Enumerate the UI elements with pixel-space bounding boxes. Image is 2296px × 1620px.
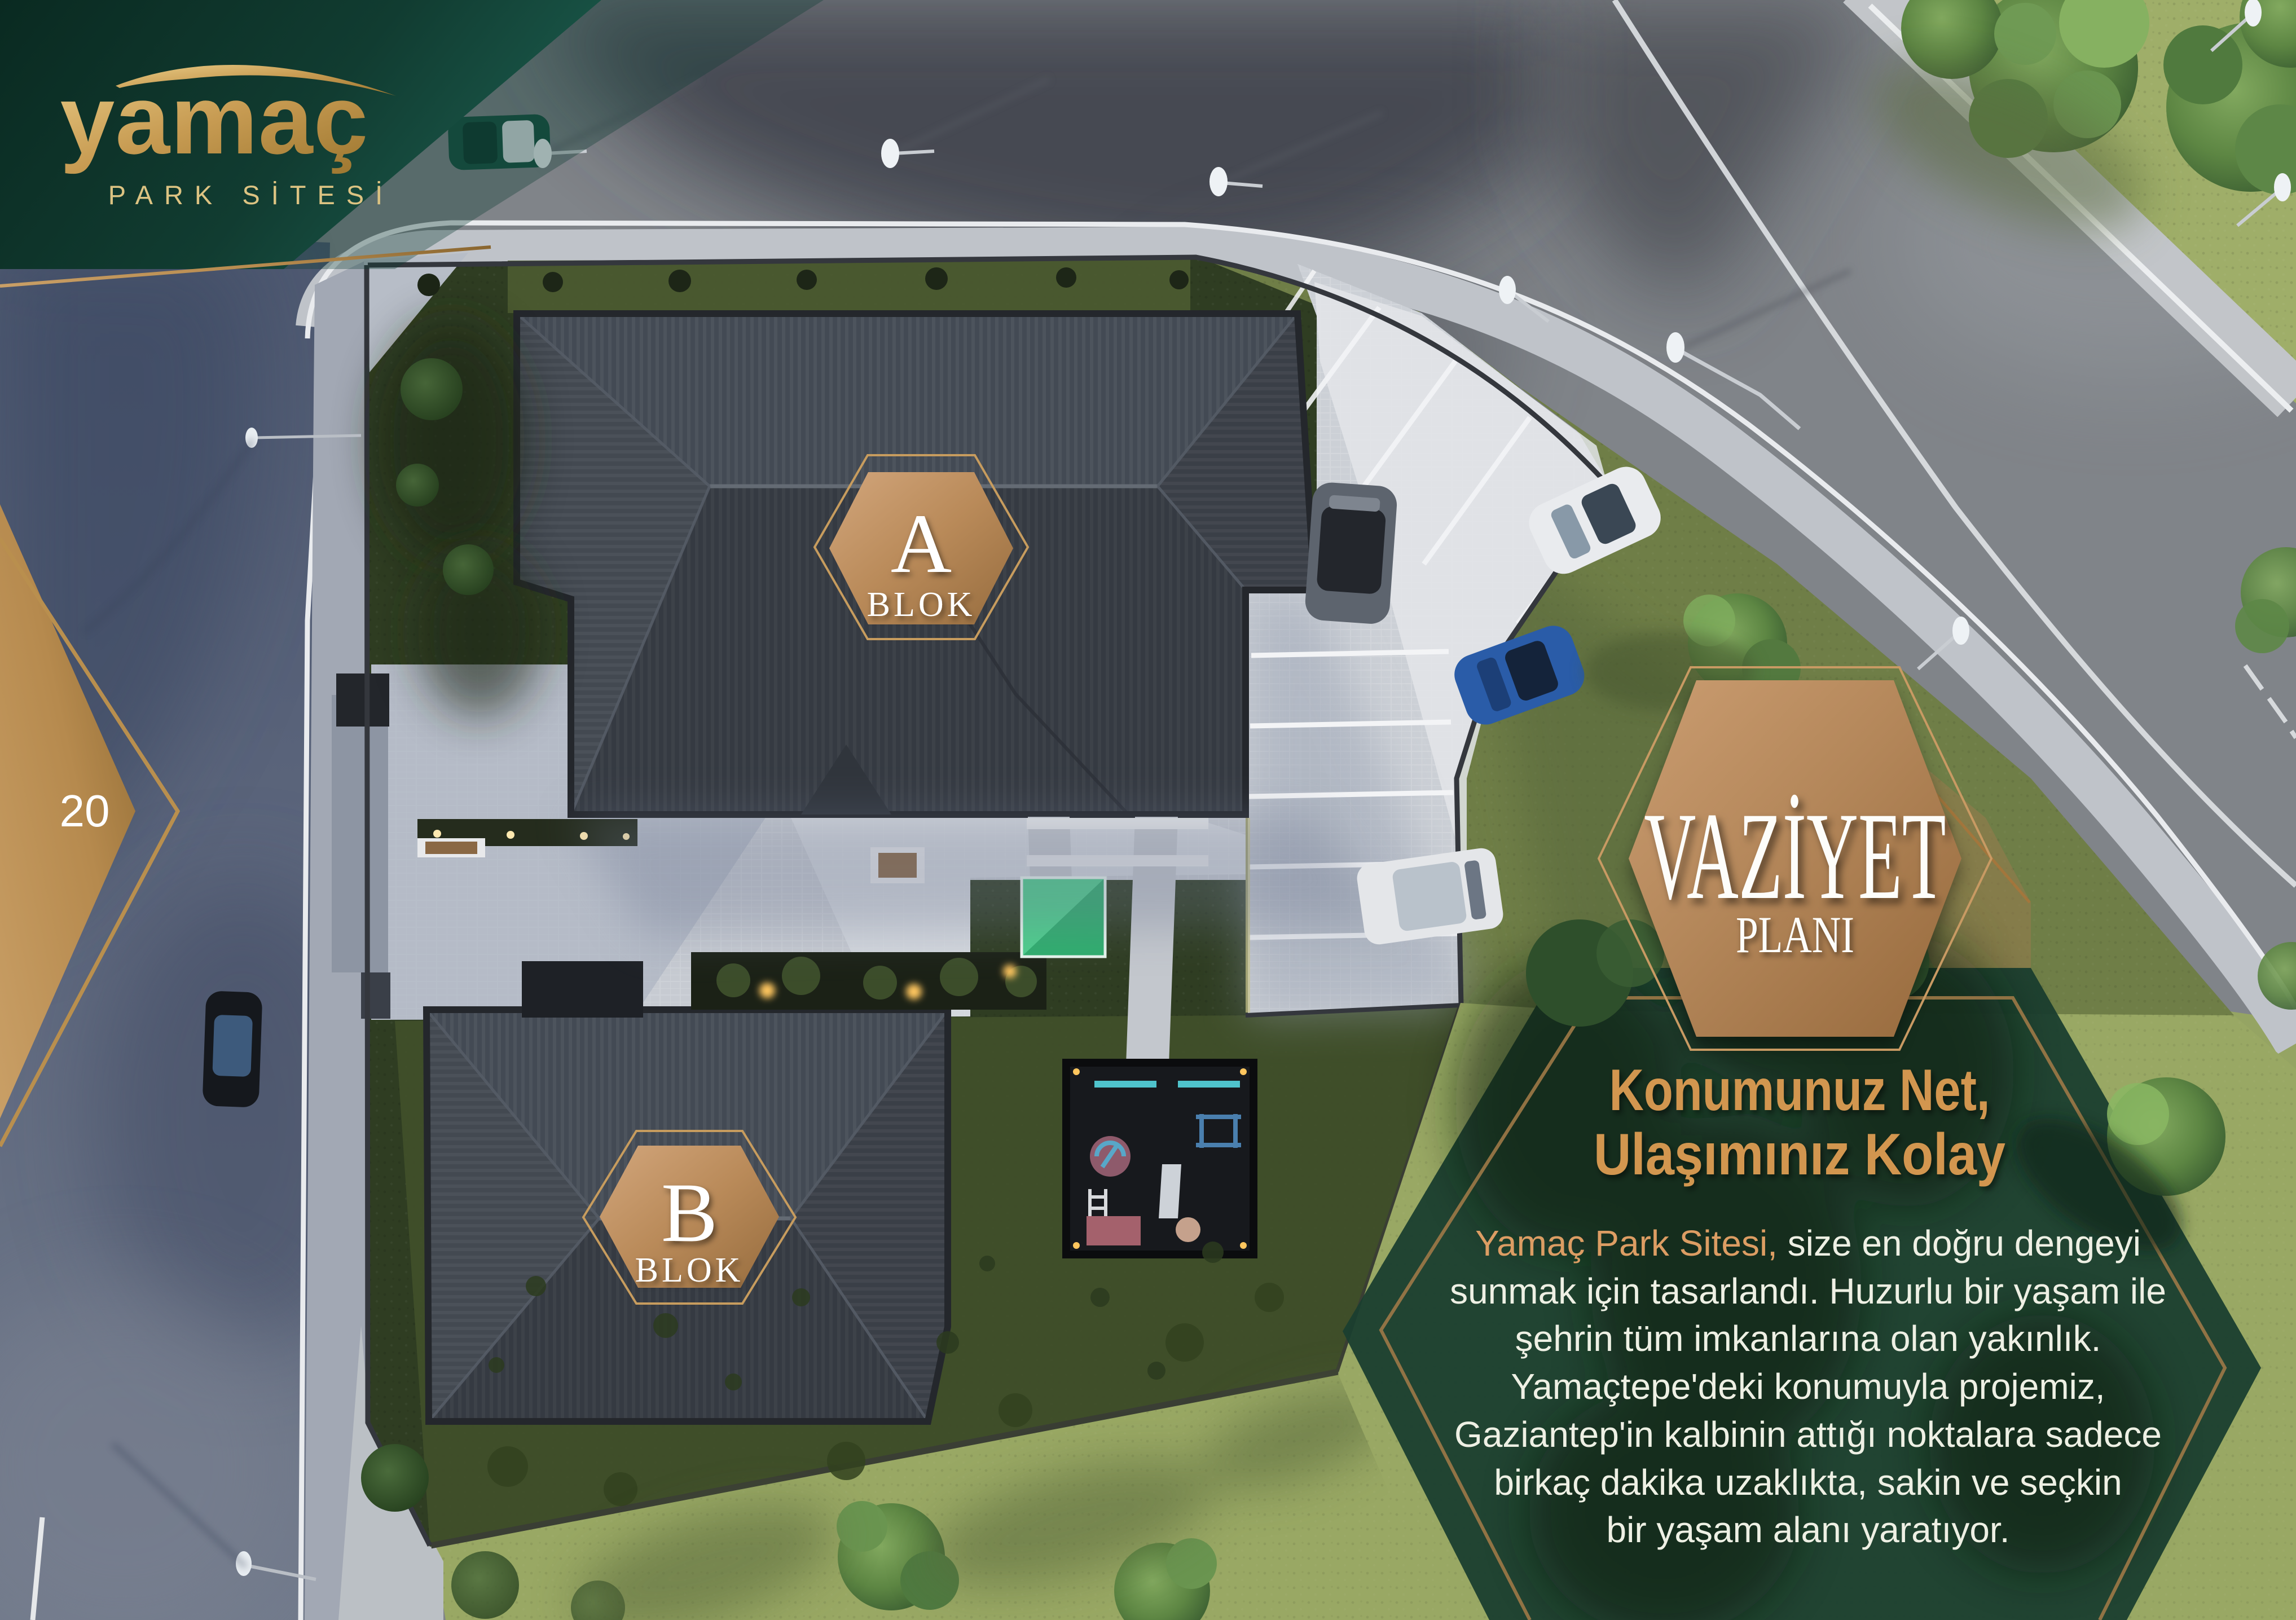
svg-text:Yamaç Park Sitesi, size en doğ: Yamaç Park Sitesi, size en doğru dengeyi: [1475, 1223, 2141, 1264]
svg-text:BLOK: BLOK: [867, 586, 976, 624]
svg-text:Konumunuz Net,: Konumunuz Net,: [1609, 1058, 1990, 1123]
svg-text:yamaç: yamaç: [60, 64, 369, 174]
svg-text:20: 20: [60, 786, 110, 836]
svg-text:bir yaşam alanı yaratıyor.: bir yaşam alanı yaratıyor.: [1607, 1509, 2010, 1550]
svg-text:PARK SİTESİ: PARK SİTESİ: [108, 180, 394, 210]
svg-text:sunmak için tasarlandı. Huzurl: sunmak için tasarlandı. Huzurlu bir yaşa…: [1450, 1271, 2166, 1311]
svg-text:A: A: [891, 497, 952, 591]
svg-text:B: B: [661, 1166, 718, 1260]
svg-text:PLANI: PLANI: [1736, 906, 1854, 963]
svg-text:Gaziantep'in kalbinin attığı n: Gaziantep'in kalbinin attığı noktalara s…: [1454, 1414, 2162, 1455]
svg-text:Ulaşımınız Kolay: Ulaşımınız Kolay: [1594, 1122, 2005, 1187]
svg-text:Yamaçtepe'deki konumuyla proje: Yamaçtepe'deki konumuyla projemiz,: [1511, 1366, 2105, 1407]
svg-text:VAZİYET: VAZİYET: [1644, 787, 1946, 926]
svg-text:birkaç dakika uzaklıkta, sakin: birkaç dakika uzaklıkta, sakin ve seçkin: [1494, 1462, 2122, 1503]
svg-text:BLOK: BLOK: [635, 1251, 744, 1289]
svg-text:şehrin tüm imkanlarına olan ya: şehrin tüm imkanlarına olan yakınlık.: [1515, 1318, 2101, 1359]
